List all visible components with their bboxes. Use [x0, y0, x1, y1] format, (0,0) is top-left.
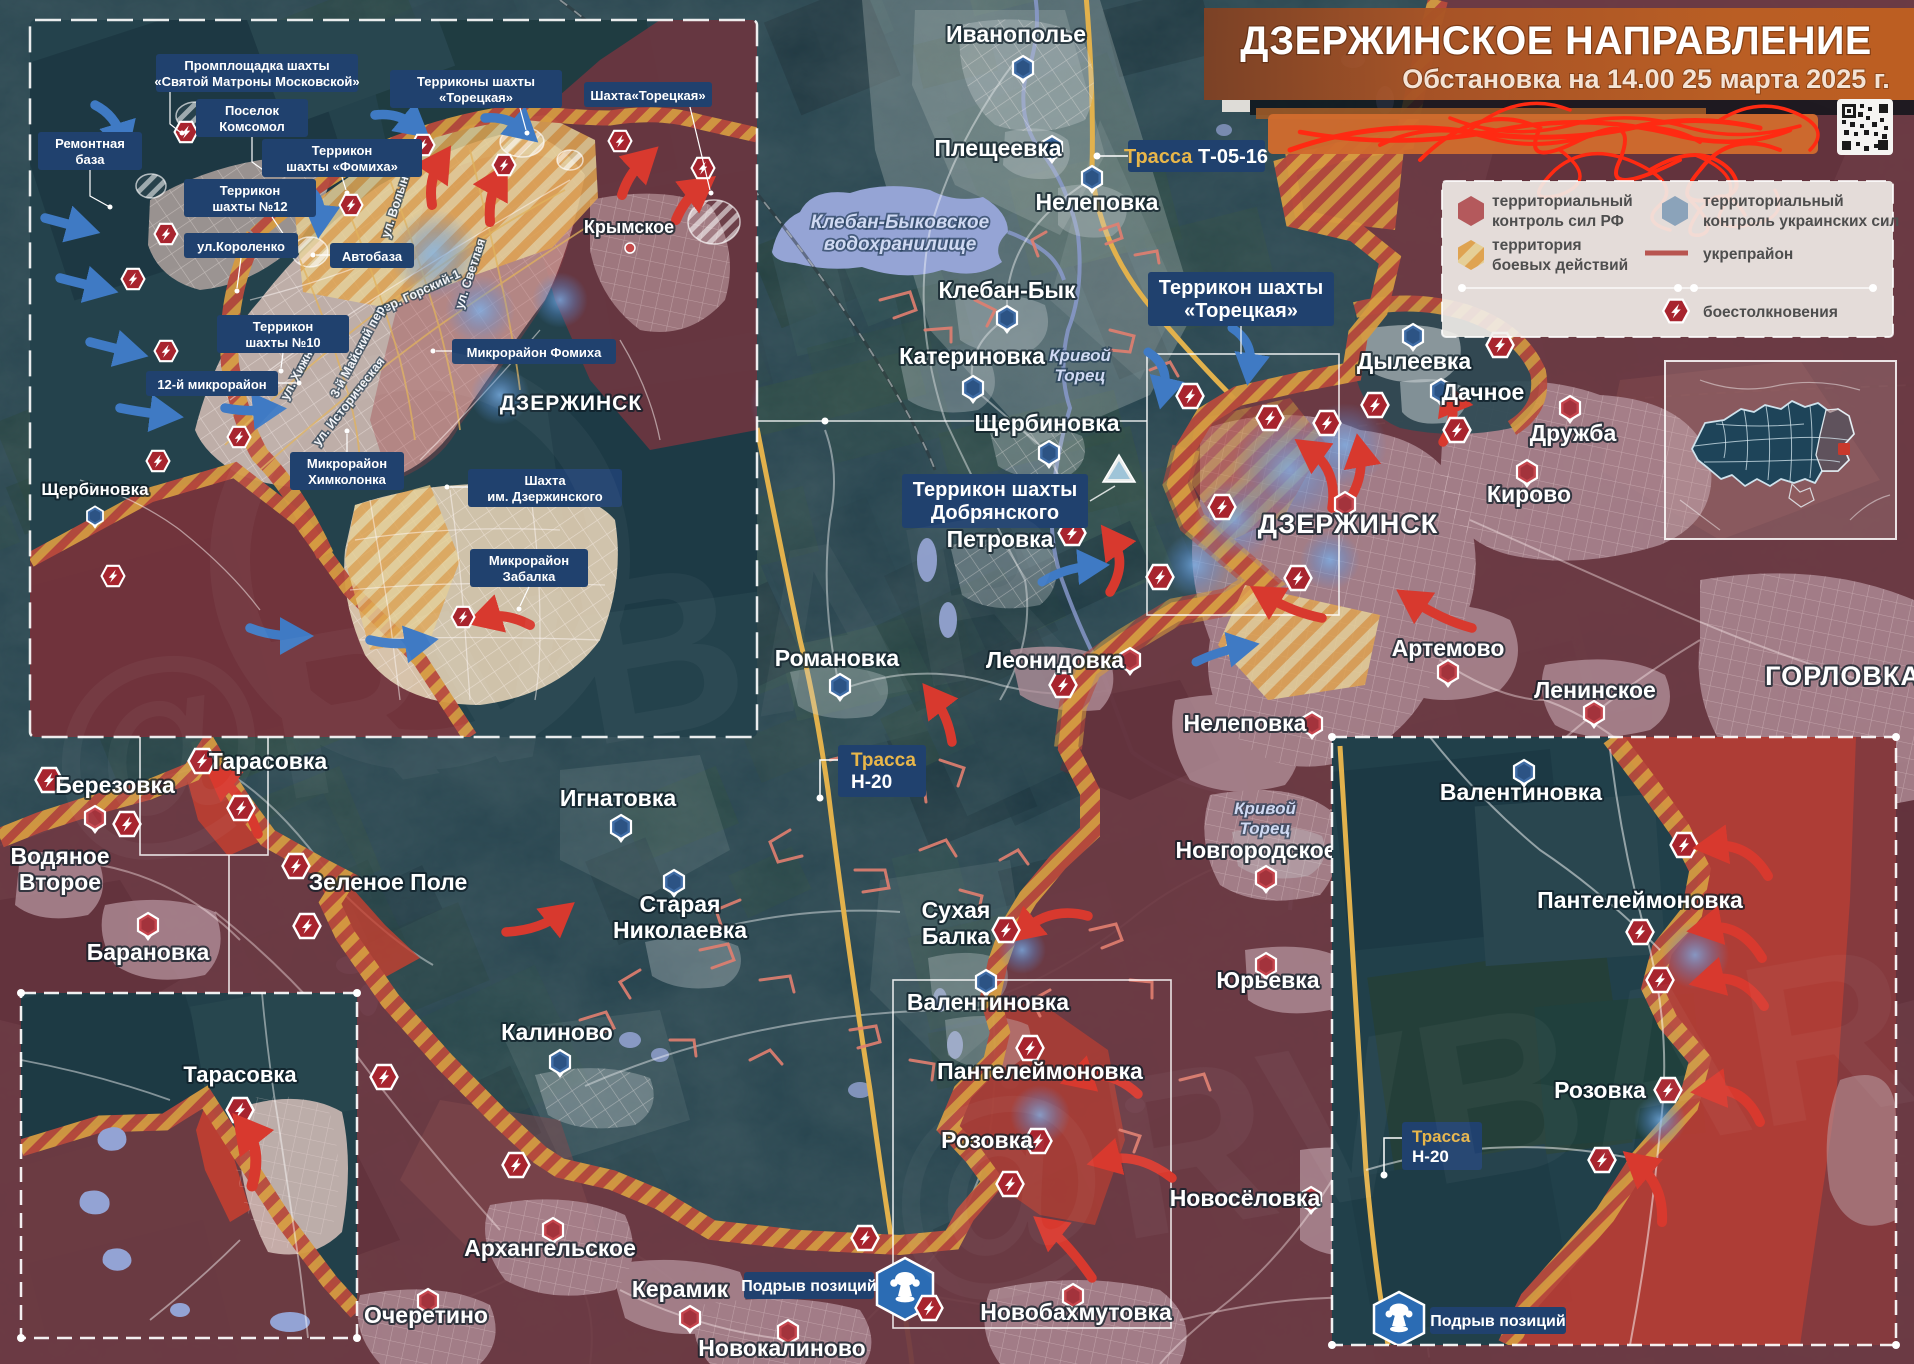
svg-text:Тарасовка: Тарасовка: [183, 1062, 297, 1087]
svg-text:Клебан-Быковское: Клебан-Быковское: [811, 212, 990, 233]
svg-text:Трасса: Трасса: [851, 750, 916, 771]
svg-text:Валентиновка: Валентиновка: [907, 989, 1069, 1015]
svg-text:Новгородское: Новгородское: [1175, 837, 1336, 863]
svg-text:Керамик: Керамик: [632, 1276, 729, 1302]
svg-text:Артемово: Артемово: [1392, 635, 1505, 661]
svg-text:Торец: Торец: [1240, 819, 1291, 838]
svg-text:ДЗЕРЖИНСКОЕ НАПРАВЛЕНИЕ: ДЗЕРЖИНСКОЕ НАПРАВЛЕНИЕ: [1240, 19, 1872, 63]
svg-text:«Торецкая»: «Торецкая»: [1184, 300, 1298, 322]
svg-text:Н-20: Н-20: [851, 772, 892, 793]
svg-text:Щербиновка: Щербиновка: [41, 480, 149, 499]
svg-text:Шахта: Шахта: [524, 473, 566, 488]
svg-text:Кривой: Кривой: [1049, 346, 1111, 365]
svg-text:Химколонка: Химколонка: [308, 472, 387, 487]
svg-text:боевых действий: боевых действий: [1492, 257, 1628, 274]
svg-text:шахты №12: шахты №12: [212, 199, 287, 214]
svg-text:Николаевка: Николаевка: [613, 917, 747, 943]
svg-text:«Святой Матроны Московской»: «Святой Матроны Московской»: [154, 74, 359, 89]
svg-text:Терриконы шахты: Терриконы шахты: [417, 74, 535, 89]
svg-text:Шахта«Торецкая»: Шахта«Торецкая»: [590, 88, 705, 103]
svg-text:Старая: Старая: [640, 891, 721, 917]
svg-text:Дылеевка: Дылеевка: [1357, 348, 1472, 374]
svg-text:боестолкновения: боестолкновения: [1703, 304, 1838, 321]
svg-text:Очеретино: Очеретино: [364, 1302, 488, 1328]
svg-text:Новокалиново: Новокалиново: [698, 1335, 865, 1361]
svg-text:Дружба: Дружба: [1530, 420, 1617, 446]
svg-text:12-й микрорайон: 12-й микрорайон: [157, 377, 266, 392]
svg-text:контроль украинских сил: контроль украинских сил: [1703, 213, 1899, 230]
svg-text:территория: территория: [1492, 237, 1582, 254]
svg-text:Дачное: Дачное: [1442, 379, 1525, 405]
svg-text:Торец: Торец: [1055, 366, 1106, 385]
svg-text:Террикон: Террикон: [312, 143, 373, 158]
svg-text:Подрыв позиций: Подрыв позиций: [1430, 1313, 1565, 1330]
svg-text:шахты «Фомиха»: шахты «Фомиха»: [286, 159, 398, 174]
svg-text:Щербиновка: Щербиновка: [974, 410, 1119, 436]
svg-text:Сухая: Сухая: [922, 897, 991, 923]
svg-text:территориальный: территориальный: [1492, 193, 1633, 210]
svg-text:Барановка: Барановка: [87, 939, 210, 965]
svg-text:Террикон: Террикон: [220, 183, 281, 198]
svg-text:Комсомол: Комсомол: [219, 119, 284, 134]
svg-text:Террикон: Террикон: [253, 319, 314, 334]
svg-text:Пантелеймоновка: Пантелеймоновка: [1537, 887, 1743, 913]
svg-text:Зеленое Поле: Зеленое Поле: [309, 869, 468, 895]
svg-text:Промплощадка шахты: Промплощадка шахты: [184, 58, 329, 73]
svg-text:ГОРЛОВКА: ГОРЛОВКА: [1765, 661, 1914, 691]
svg-text:Трасса Т-05-16: Трасса Т-05-16: [1124, 146, 1268, 168]
svg-text:Ленинское: Ленинское: [1534, 677, 1656, 703]
svg-text:Кривой: Кривой: [1234, 799, 1296, 818]
svg-text:Архангельское: Архангельское: [464, 1235, 636, 1261]
svg-text:Калиново: Калиново: [501, 1019, 613, 1045]
svg-text:Террикон шахты: Террикон шахты: [1159, 277, 1323, 299]
svg-text:укрепрайон: укрепрайон: [1703, 246, 1793, 263]
svg-text:Обстановка на 14.00 25 марта 2: Обстановка на 14.00 25 марта 2025 г.: [1402, 64, 1890, 94]
svg-text:Иванополье: Иванополье: [946, 21, 1086, 47]
svg-text:база: база: [76, 152, 106, 167]
svg-text:Балка: Балка: [922, 923, 990, 949]
svg-text:Плещеевка: Плещеевка: [934, 135, 1061, 161]
svg-text:Подрыв позиций: Подрыв позиций: [741, 1278, 876, 1295]
svg-text:Катериновка: Катериновка: [899, 343, 1045, 369]
svg-text:Нелеповка: Нелеповка: [1036, 189, 1159, 215]
svg-text:«Торецкая»: «Торецкая»: [439, 90, 513, 105]
svg-text:Микрорайон: Микрорайон: [307, 456, 387, 471]
svg-text:Крымское: Крымское: [584, 217, 674, 237]
svg-text:Клебан-Бык: Клебан-Бык: [938, 277, 1076, 303]
svg-text:Кирово: Кирово: [1487, 481, 1571, 507]
svg-text:ул.Короленко: ул.Короленко: [197, 239, 285, 254]
svg-text:Автобаза: Автобаза: [342, 249, 403, 264]
svg-text:Юрьевка: Юрьевка: [1216, 967, 1319, 993]
svg-text:Поселок: Поселок: [225, 103, 280, 118]
svg-text:территориальный: территориальный: [1703, 193, 1844, 210]
svg-text:контроль сил РФ: контроль сил РФ: [1492, 213, 1624, 230]
svg-text:ДЗЕРЖИНСК: ДЗЕРЖИНСК: [1258, 509, 1438, 539]
svg-text:Ремонтная: Ремонтная: [55, 136, 125, 151]
svg-text:Микрорайон Фомиха: Микрорайон Фомиха: [467, 345, 602, 360]
svg-text:шахты №10: шахты №10: [245, 335, 320, 350]
svg-text:Нелеповка: Нелеповка: [1184, 710, 1307, 736]
svg-text:водохранилище: водохранилище: [824, 234, 977, 255]
